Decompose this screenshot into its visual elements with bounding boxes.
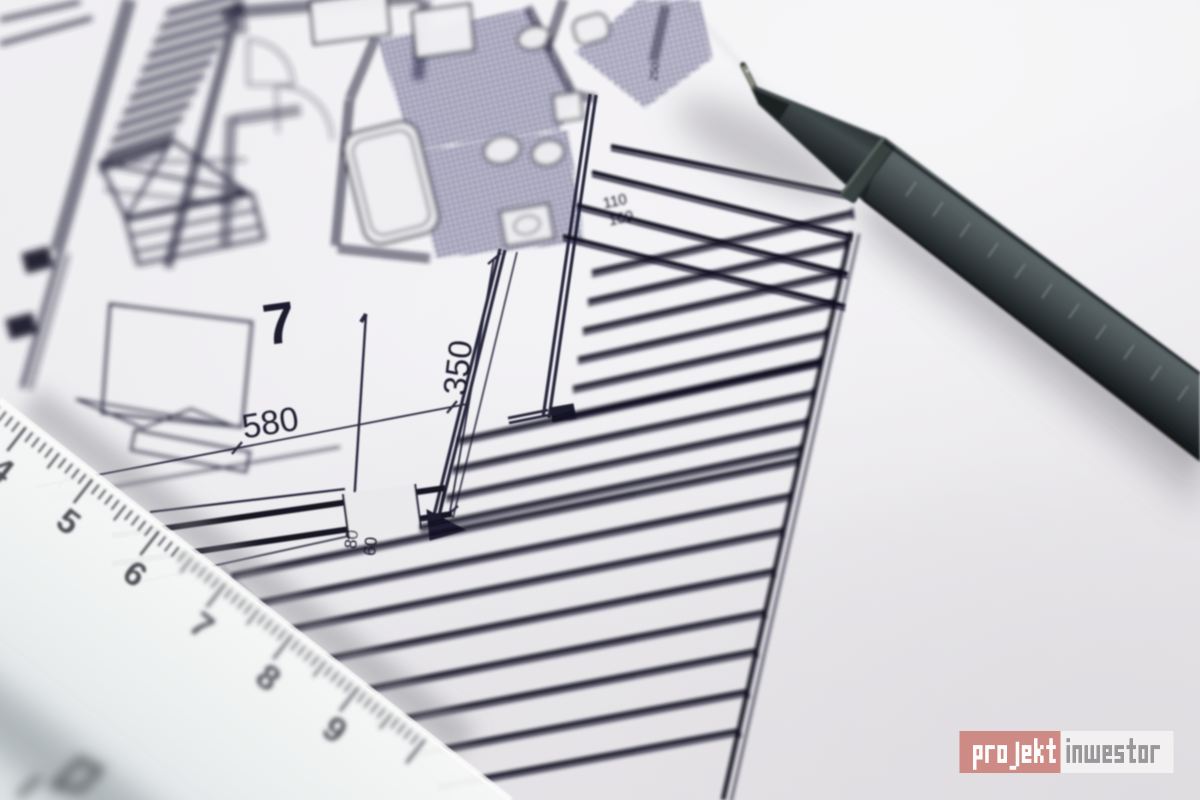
svg-text:80: 80 [341, 529, 362, 550]
svg-text:250: 250 [648, 62, 662, 82]
svg-text:350: 350 [436, 338, 479, 397]
